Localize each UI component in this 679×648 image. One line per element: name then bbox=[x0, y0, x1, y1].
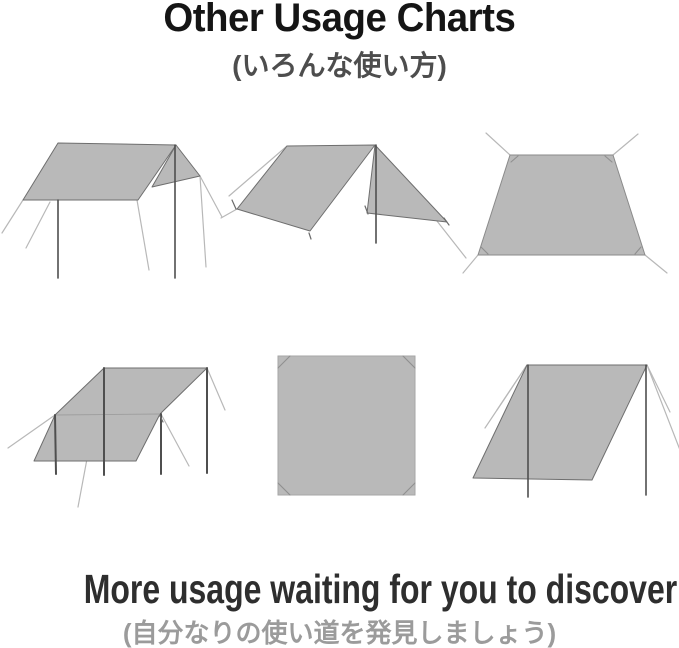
flat-square-tarp-icon bbox=[270, 350, 425, 500]
flat-tarp-with-side-flap-icon bbox=[0, 130, 240, 290]
usage-chart-poster: Other Usage Charts (いろんな使い方) bbox=[0, 0, 679, 648]
a-frame-tarp-icon bbox=[215, 130, 475, 265]
footer-text-jp: (自分なりの使い道を発見しましょう) bbox=[0, 613, 679, 648]
lean-to-tarp-icon bbox=[455, 360, 679, 505]
four-pole-awning-icon bbox=[0, 360, 240, 515]
tarp-sheet bbox=[278, 356, 415, 495]
tarp-canopy bbox=[237, 145, 447, 231]
footer-text: More usage waiting for you to discover bbox=[0, 566, 679, 613]
tarp-canopy bbox=[34, 368, 207, 461]
ground-sheet-icon bbox=[450, 120, 679, 285]
tarp-canopy bbox=[23, 143, 200, 200]
page-subtitle-jp: (いろんな使い方) bbox=[0, 44, 679, 84]
page-title: Other Usage Charts bbox=[0, 0, 679, 41]
tarp-sheet bbox=[478, 155, 645, 255]
tarp-canopy bbox=[473, 365, 647, 480]
